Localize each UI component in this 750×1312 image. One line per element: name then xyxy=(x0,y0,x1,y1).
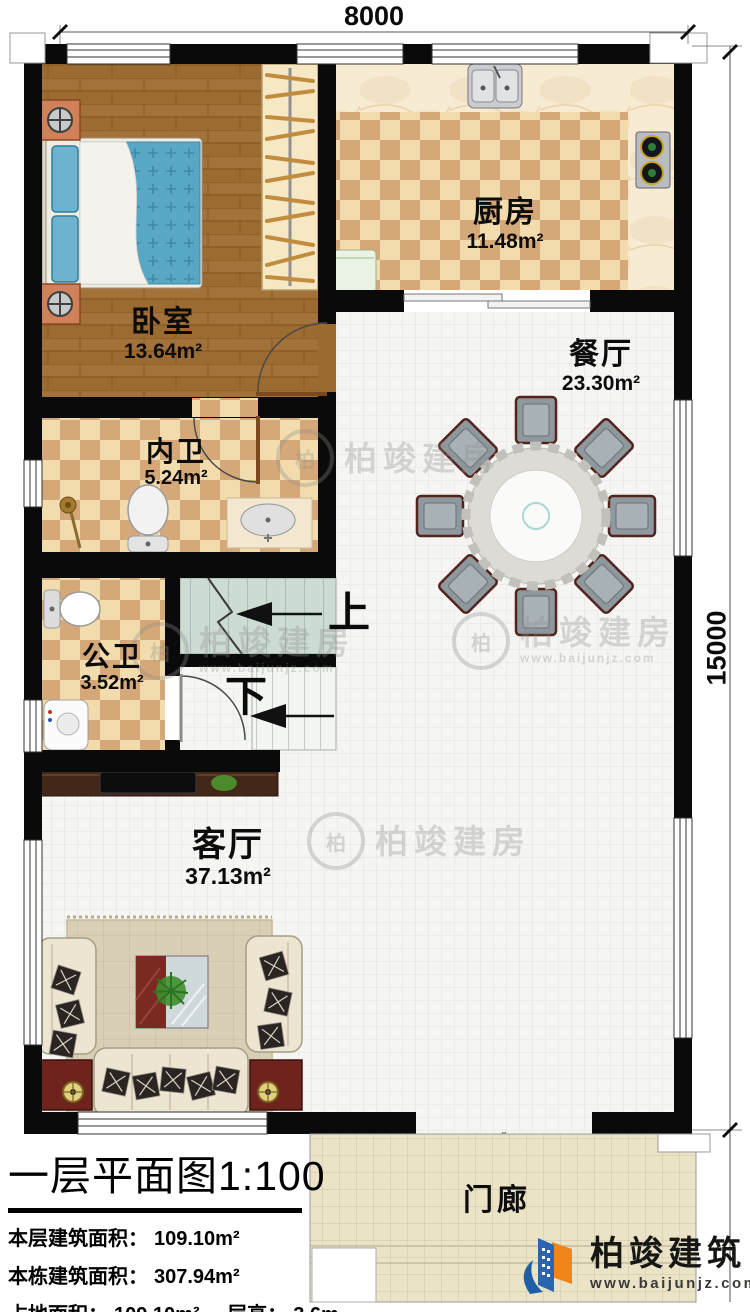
watermark: 柏 柏竣建房 www.baijunjz.com xyxy=(452,612,676,670)
window xyxy=(674,400,692,556)
dimension-width: 8000 xyxy=(344,3,404,30)
kitchen-sliding-door xyxy=(404,294,590,308)
pillow xyxy=(52,216,78,282)
room-label-living: 客厅 37.13m² xyxy=(185,826,271,890)
toilet xyxy=(128,485,168,552)
side-table xyxy=(40,1060,92,1110)
watermark-logo-icon: 柏 xyxy=(452,612,510,670)
nightstand xyxy=(40,284,80,324)
room-label-dining: 餐厅 23.30m² xyxy=(562,338,640,395)
stove xyxy=(636,132,670,188)
brand-url: www.baijunjz.com xyxy=(590,1275,750,1292)
vanity-sink xyxy=(227,498,312,548)
window xyxy=(24,700,42,752)
title-block: 一层平面图1:100 本层建筑面积：109.10m² 本栋建筑面积：307.94… xyxy=(8,1142,308,1312)
brand-logo: 柏竣建筑 www.baijunjz.com xyxy=(516,1236,750,1298)
toilet xyxy=(44,590,100,628)
watermark: 柏 柏竣建房 xyxy=(307,812,531,870)
stat-footprint-and-height: 占地面积：109.10m² 层高：3.6m xyxy=(8,1298,308,1312)
window xyxy=(78,1112,267,1134)
stairs-up-label: 上 xyxy=(328,592,370,634)
watermark: 柏 柏竣建房 xyxy=(276,429,500,487)
room-label-bedroom: 卧室 13.64m² xyxy=(124,306,202,363)
watermark-logo-icon: 柏 xyxy=(276,429,334,487)
plan-title: 一层平面图1:100 xyxy=(8,1142,308,1202)
coffee-table xyxy=(136,956,208,1028)
nightstand xyxy=(40,100,80,140)
kitchen-sink xyxy=(468,64,522,108)
room-label-bath: 公卫 3.52m² xyxy=(80,641,143,695)
watermark: 柏 柏竣建房 www.baijunjz.com xyxy=(131,622,355,680)
pillow xyxy=(52,146,78,212)
title-underline xyxy=(8,1208,302,1213)
stat-building-area: 本栋建筑面积：307.94m² xyxy=(8,1260,308,1289)
dimension-height: 15000 xyxy=(704,610,731,685)
window xyxy=(432,44,578,64)
window xyxy=(24,460,42,507)
fridge xyxy=(334,250,376,292)
room-label-ensuite: 内卫 5.24m² xyxy=(144,436,207,490)
side-table xyxy=(250,1060,302,1110)
brand-name: 柏竣建筑 xyxy=(590,1236,750,1273)
stat-floor-area: 本层建筑面积：109.10m² xyxy=(8,1222,308,1251)
tv-cabinet xyxy=(40,770,278,796)
plant xyxy=(211,775,237,791)
stairs-down-label: 下 xyxy=(225,676,267,718)
floor-plan-page: 柏 柏竣建房 柏 柏竣建房 www.baijunjz.com 柏 柏竣建房 ww… xyxy=(0,0,750,1312)
room-label-porch: 门廊 xyxy=(463,1184,531,1218)
window xyxy=(67,44,170,64)
porch-step xyxy=(312,1248,376,1302)
window xyxy=(674,818,692,1038)
room-label-kitchen: 厨房 11.48m² xyxy=(466,196,543,253)
brand-logo-icon xyxy=(516,1236,582,1298)
window xyxy=(24,840,42,1045)
plan-scale: 1:100 xyxy=(218,1153,326,1199)
watermark-logo-icon: 柏 xyxy=(307,812,365,870)
washbasin-unit xyxy=(44,700,88,750)
wardrobe xyxy=(262,64,318,290)
tv xyxy=(100,772,196,793)
window xyxy=(297,44,403,64)
